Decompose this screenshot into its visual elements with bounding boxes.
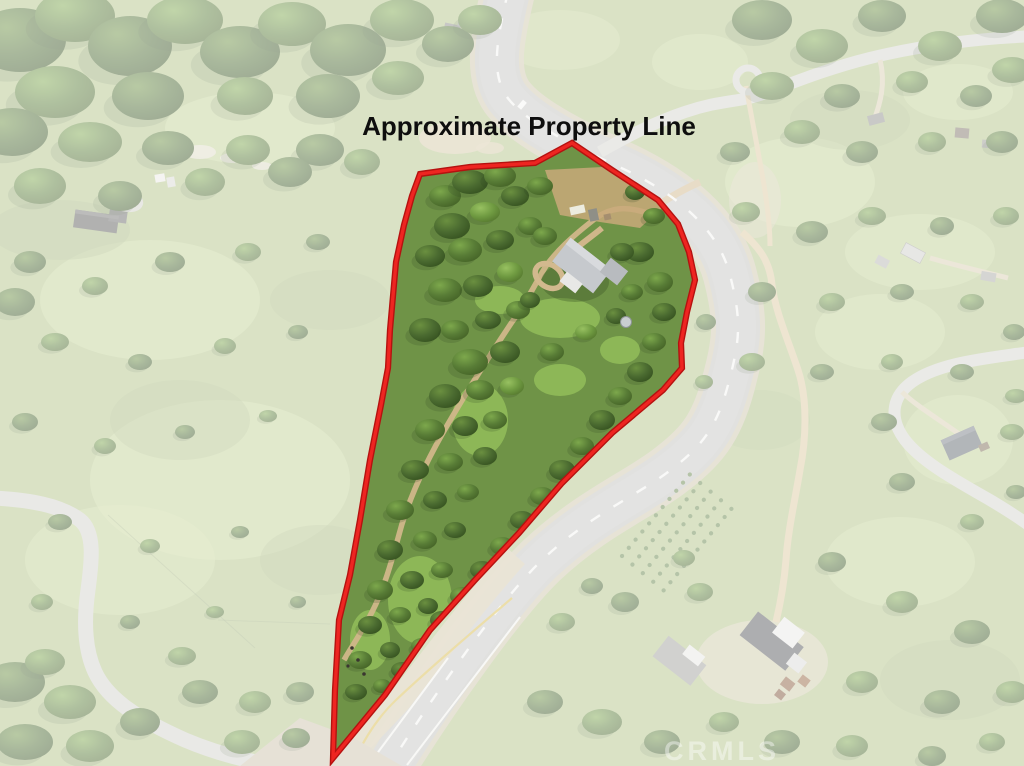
property-line-label: Approximate Property Line [362, 111, 696, 141]
aerial-photo: Approximate Property Line CRMLS [0, 0, 1024, 766]
aerial-scene: Approximate Property Line CRMLS [0, 0, 1024, 766]
watermark: CRMLS [664, 736, 780, 766]
